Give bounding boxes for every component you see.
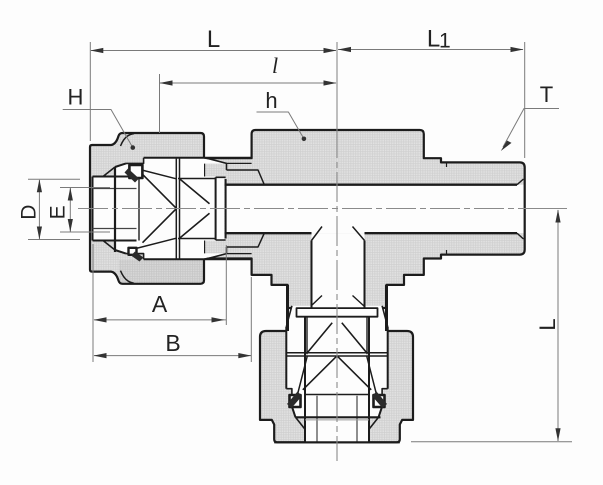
svg-text:D: D (18, 205, 41, 220)
svg-text:h: h (265, 88, 277, 113)
svg-text:A: A (152, 291, 168, 317)
svg-text:l: l (272, 53, 278, 78)
svg-text:L: L (207, 26, 220, 53)
svg-text:1: 1 (439, 30, 451, 53)
svg-text:B: B (165, 330, 180, 356)
svg-text:E: E (47, 205, 70, 219)
svg-text:H: H (68, 85, 84, 110)
svg-text:T: T (540, 82, 553, 107)
svg-text:L: L (535, 318, 560, 330)
